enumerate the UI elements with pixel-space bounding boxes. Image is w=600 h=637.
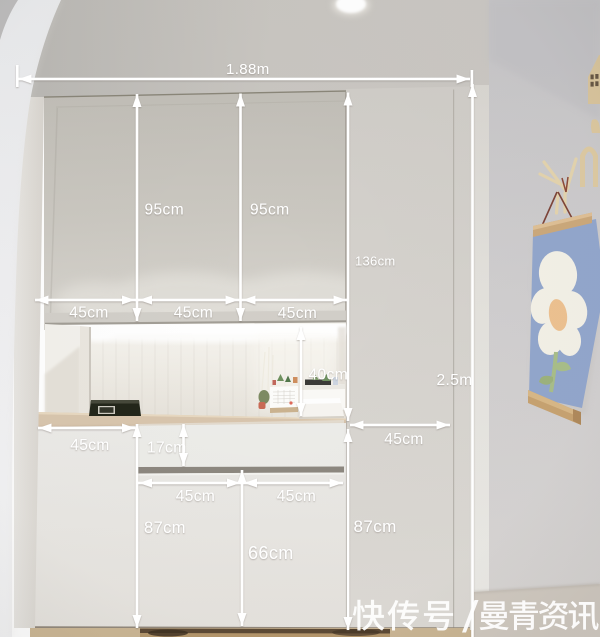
svg-text:87cm: 87cm <box>144 519 186 537</box>
svg-text:87cm: 87cm <box>354 517 397 536</box>
svg-text:45cm: 45cm <box>176 488 216 505</box>
svg-text:17cm: 17cm <box>147 440 187 457</box>
svg-text:1.88m: 1.88m <box>226 61 270 78</box>
svg-text:2.5m: 2.5m <box>437 372 473 389</box>
svg-text:45cm: 45cm <box>278 305 318 322</box>
svg-text:45cm: 45cm <box>277 488 317 505</box>
svg-text:66cm: 66cm <box>248 543 294 563</box>
svg-text:45cm: 45cm <box>69 305 109 322</box>
svg-text:40cm: 40cm <box>309 367 349 384</box>
svg-text:95cm: 95cm <box>145 202 185 219</box>
svg-text:45cm: 45cm <box>384 431 424 448</box>
svg-text:45cm: 45cm <box>174 305 214 322</box>
svg-text:95cm: 95cm <box>250 202 290 219</box>
svg-text:136cm: 136cm <box>355 254 396 269</box>
svg-text:45cm: 45cm <box>70 437 110 454</box>
